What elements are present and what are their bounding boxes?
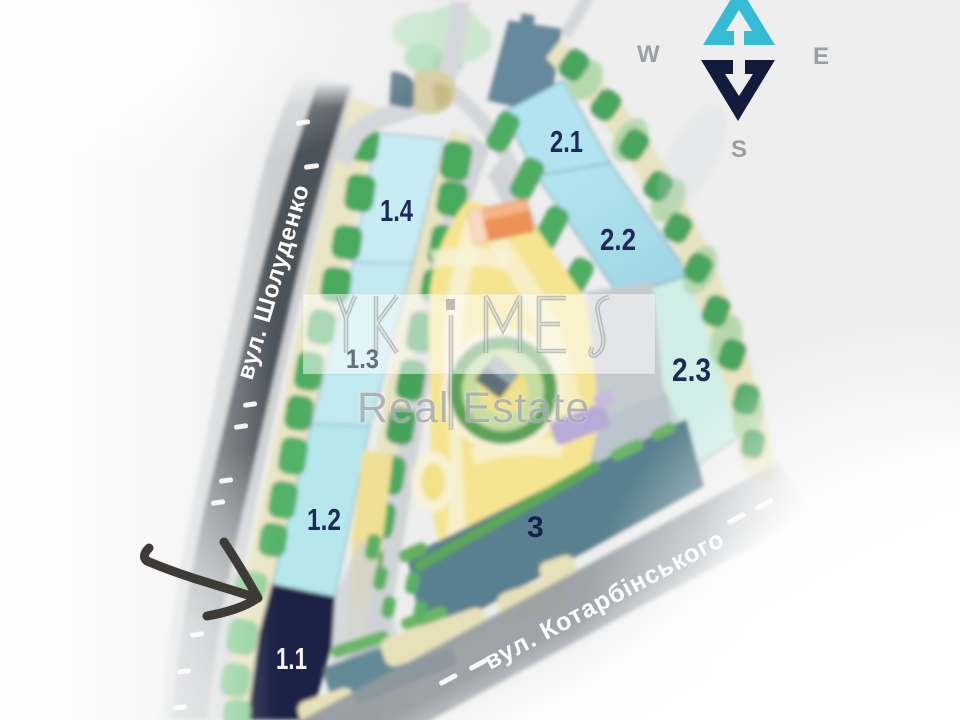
svg-text:2.3: 2.3 — [672, 352, 711, 388]
svg-text:2.1: 2.1 — [550, 124, 583, 159]
svg-text:3: 3 — [527, 511, 544, 544]
svg-text:1.2: 1.2 — [307, 502, 341, 537]
svg-text:1.4: 1.4 — [380, 193, 414, 228]
svg-text:E: E — [813, 43, 829, 70]
svg-text:1.3: 1.3 — [346, 344, 379, 374]
svg-text:2.2: 2.2 — [600, 222, 636, 257]
svg-text:S: S — [731, 136, 747, 163]
svg-text:Real Estate: Real Estate — [357, 384, 590, 432]
svg-text:W: W — [637, 41, 660, 68]
svg-text:1.1: 1.1 — [276, 641, 307, 676]
